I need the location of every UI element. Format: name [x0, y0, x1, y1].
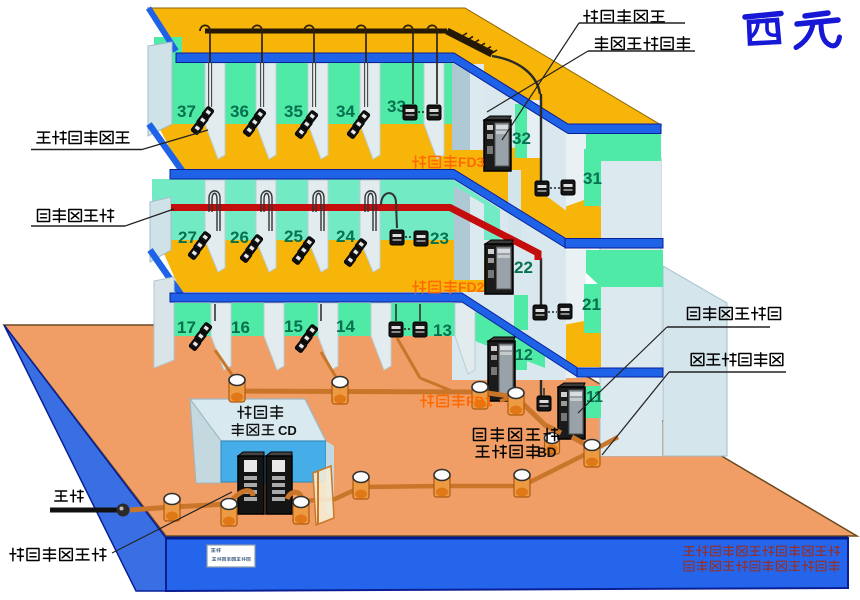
svg-text:35: 35 [284, 102, 303, 121]
svg-text:14: 14 [336, 317, 355, 336]
svg-text:22: 22 [514, 258, 533, 277]
svg-text:15: 15 [284, 317, 303, 336]
svg-text:FD1: FD1 [466, 393, 493, 409]
svg-text:37: 37 [177, 102, 196, 121]
svg-text:12: 12 [515, 347, 533, 364]
svg-text:31: 31 [583, 169, 602, 188]
svg-text:24: 24 [336, 227, 355, 246]
svg-text:32: 32 [512, 129, 531, 148]
svg-text:34: 34 [336, 102, 355, 121]
svg-text:16: 16 [231, 318, 250, 337]
svg-text:17: 17 [177, 318, 196, 337]
svg-text:23: 23 [430, 229, 449, 248]
svg-text:25: 25 [284, 227, 303, 246]
svg-text:26: 26 [230, 228, 249, 247]
svg-text:21: 21 [582, 295, 601, 314]
svg-text:27: 27 [178, 228, 197, 247]
svg-text:CD: CD [278, 423, 297, 438]
svg-text:FD2: FD2 [458, 279, 485, 295]
svg-text:13: 13 [433, 321, 452, 340]
svg-text:FD3: FD3 [458, 154, 485, 170]
svg-text:BD: BD [537, 445, 557, 460]
svg-text:36: 36 [230, 102, 249, 121]
